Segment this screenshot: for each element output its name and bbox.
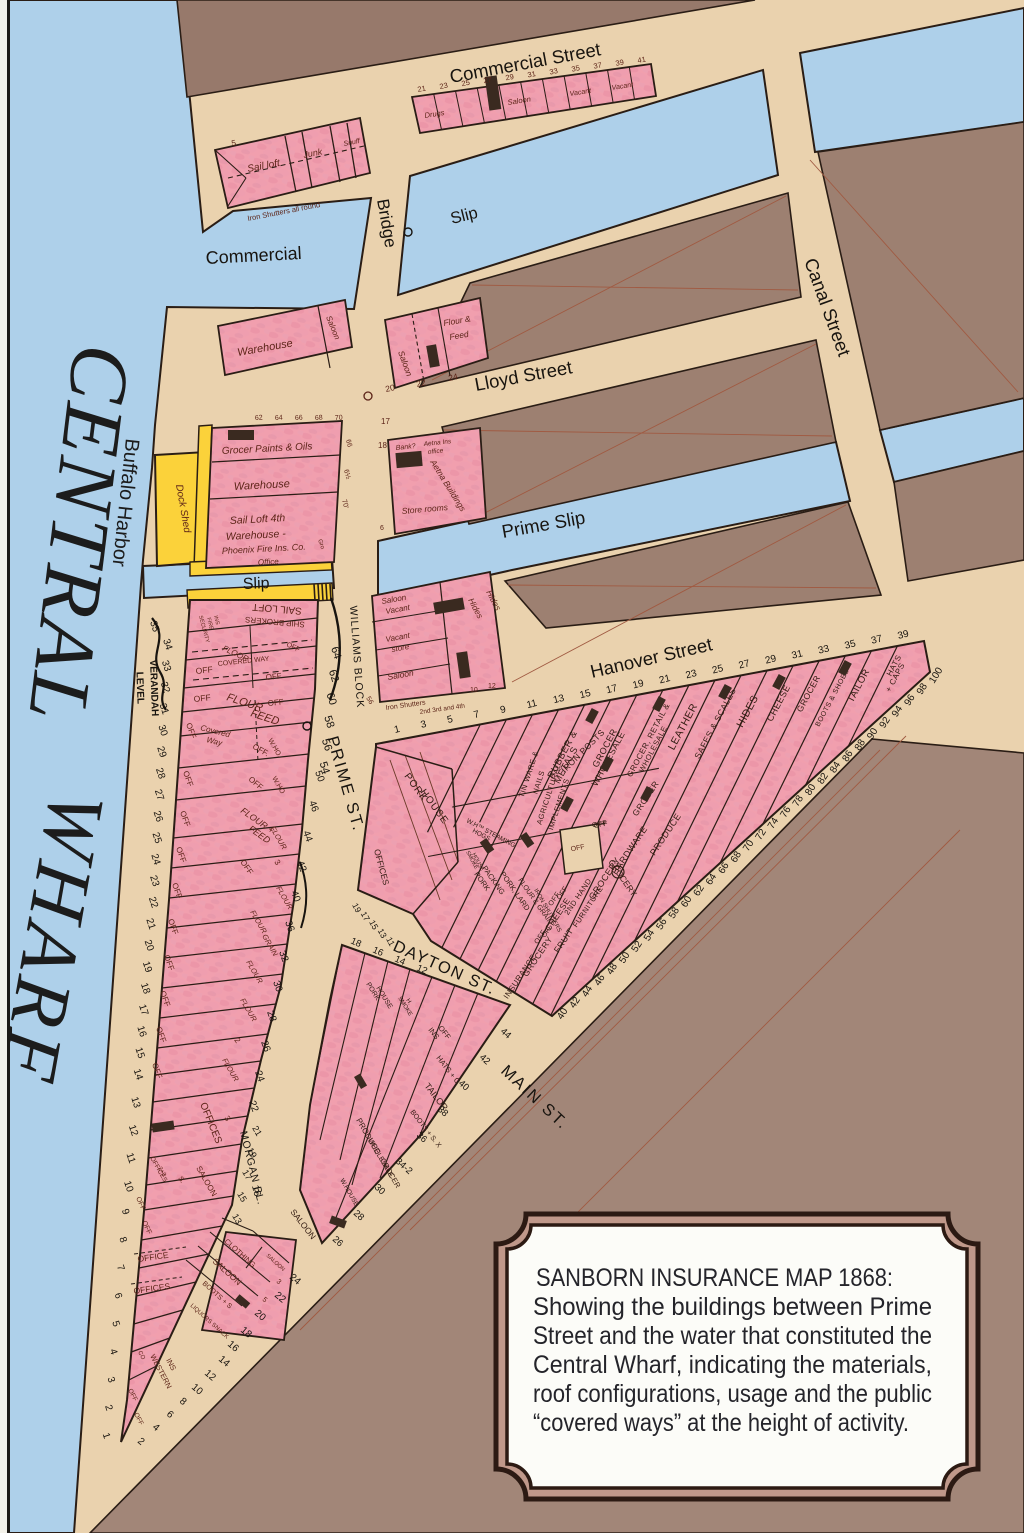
svg-text:OFF: OFF [193, 692, 211, 704]
svg-text:37: 37 [593, 60, 603, 70]
svg-text:10: 10 [470, 687, 478, 694]
svg-text:23: 23 [439, 81, 449, 91]
svg-text:“covered ways” at the height o: “covered ways” at the height of activity… [533, 1409, 909, 1437]
svg-text:LEVEL: LEVEL [133, 672, 145, 705]
svg-text:70: 70 [335, 415, 343, 422]
svg-text:Street and the water that cons: Street and the water that constituted th… [533, 1322, 932, 1350]
svg-text:Central Wharf, indicating the: Central Wharf, indicating the materials, [533, 1351, 932, 1379]
svg-text:66: 66 [295, 415, 303, 422]
svg-text:64: 64 [275, 415, 283, 422]
svg-text:roof configurations, usage and: roof configurations, usage and the publi… [533, 1380, 932, 1408]
svg-text:SANBORN INSURANCE MAP 1868:: SANBORN INSURANCE MAP 1868: [536, 1264, 893, 1292]
svg-text:12: 12 [488, 683, 496, 690]
svg-text:OFF: OFF [195, 664, 213, 676]
svg-text:Slip: Slip [243, 575, 270, 593]
svg-text:6: 6 [380, 525, 384, 532]
svg-text:18: 18 [378, 441, 387, 450]
svg-text:OFF: OFF [267, 697, 284, 708]
svg-text:39: 39 [615, 57, 625, 67]
svg-text:35: 35 [571, 63, 581, 73]
svg-text:VERANDAH: VERANDAH [147, 659, 160, 716]
svg-text:17: 17 [381, 417, 390, 426]
svg-text:Showing the buildings between: Showing the buildings between Prime [533, 1293, 932, 1321]
svg-text:41: 41 [637, 55, 647, 65]
svg-text:68: 68 [315, 415, 323, 422]
svg-text:62: 62 [255, 415, 263, 422]
svg-text:21: 21 [417, 84, 427, 94]
svg-text:OFF: OFF [265, 671, 282, 682]
svg-text:Office: Office [258, 557, 280, 567]
